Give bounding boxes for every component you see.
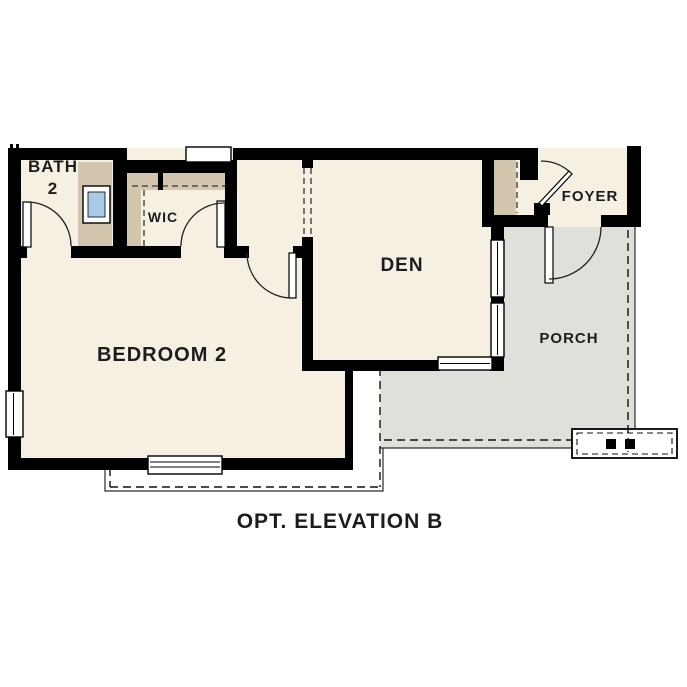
bathroom-sink [83, 186, 110, 223]
wic-shelf-left [127, 173, 141, 247]
wic-shelf-top [127, 173, 228, 190]
meter-square-1 [606, 439, 616, 449]
bath-label-line2: 2 [48, 179, 58, 198]
bath-label-line1: BATH [28, 157, 78, 176]
wic-niche [186, 147, 231, 162]
bedroom-label: BEDROOM 2 [97, 344, 227, 366]
bath-door-leaf [23, 202, 31, 247]
caption-elevation: OPT. ELEVATION B [237, 510, 444, 533]
porch-label: PORCH [539, 330, 598, 347]
foyer-label: FOYER [562, 188, 619, 205]
bedroom-side-window [6, 391, 23, 437]
bedroom-bottom-window [148, 456, 222, 474]
floor-plan: BATH 2 WIC DEN BEDROOM 2 FOYER PORCH OPT… [0, 0, 687, 687]
wic-label: WIC [148, 209, 178, 225]
front-door-leaf [545, 227, 553, 283]
bedroom-bath-floor [8, 148, 353, 470]
floor-plan-page: BATH 2 WIC DEN BEDROOM 2 FOYER PORCH OPT… [0, 0, 687, 687]
foyer-closet [494, 160, 516, 215]
bedroom-door-leaf [289, 253, 296, 298]
den-label: DEN [380, 255, 423, 276]
sink-basin [88, 192, 105, 217]
meter-square-2 [625, 439, 635, 449]
wic-door-leaf [217, 201, 225, 247]
